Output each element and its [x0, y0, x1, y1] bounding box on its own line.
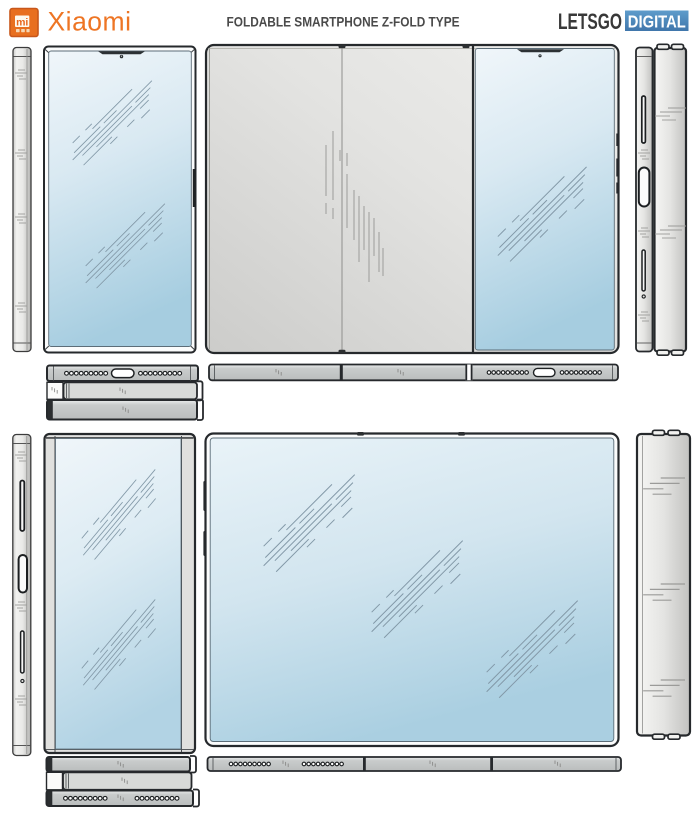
- svg-text:Xiaomi: Xiaomi: [48, 7, 132, 37]
- svg-text:LETSGO: LETSGO: [558, 9, 622, 34]
- svg-text:FOLDABLE SMARTPHONE Z-FOLD TYP: FOLDABLE SMARTPHONE Z-FOLD TYPE: [227, 13, 460, 29]
- svg-text:mi: mi: [16, 16, 28, 28]
- svg-text:DIGITAL: DIGITAL: [628, 12, 686, 32]
